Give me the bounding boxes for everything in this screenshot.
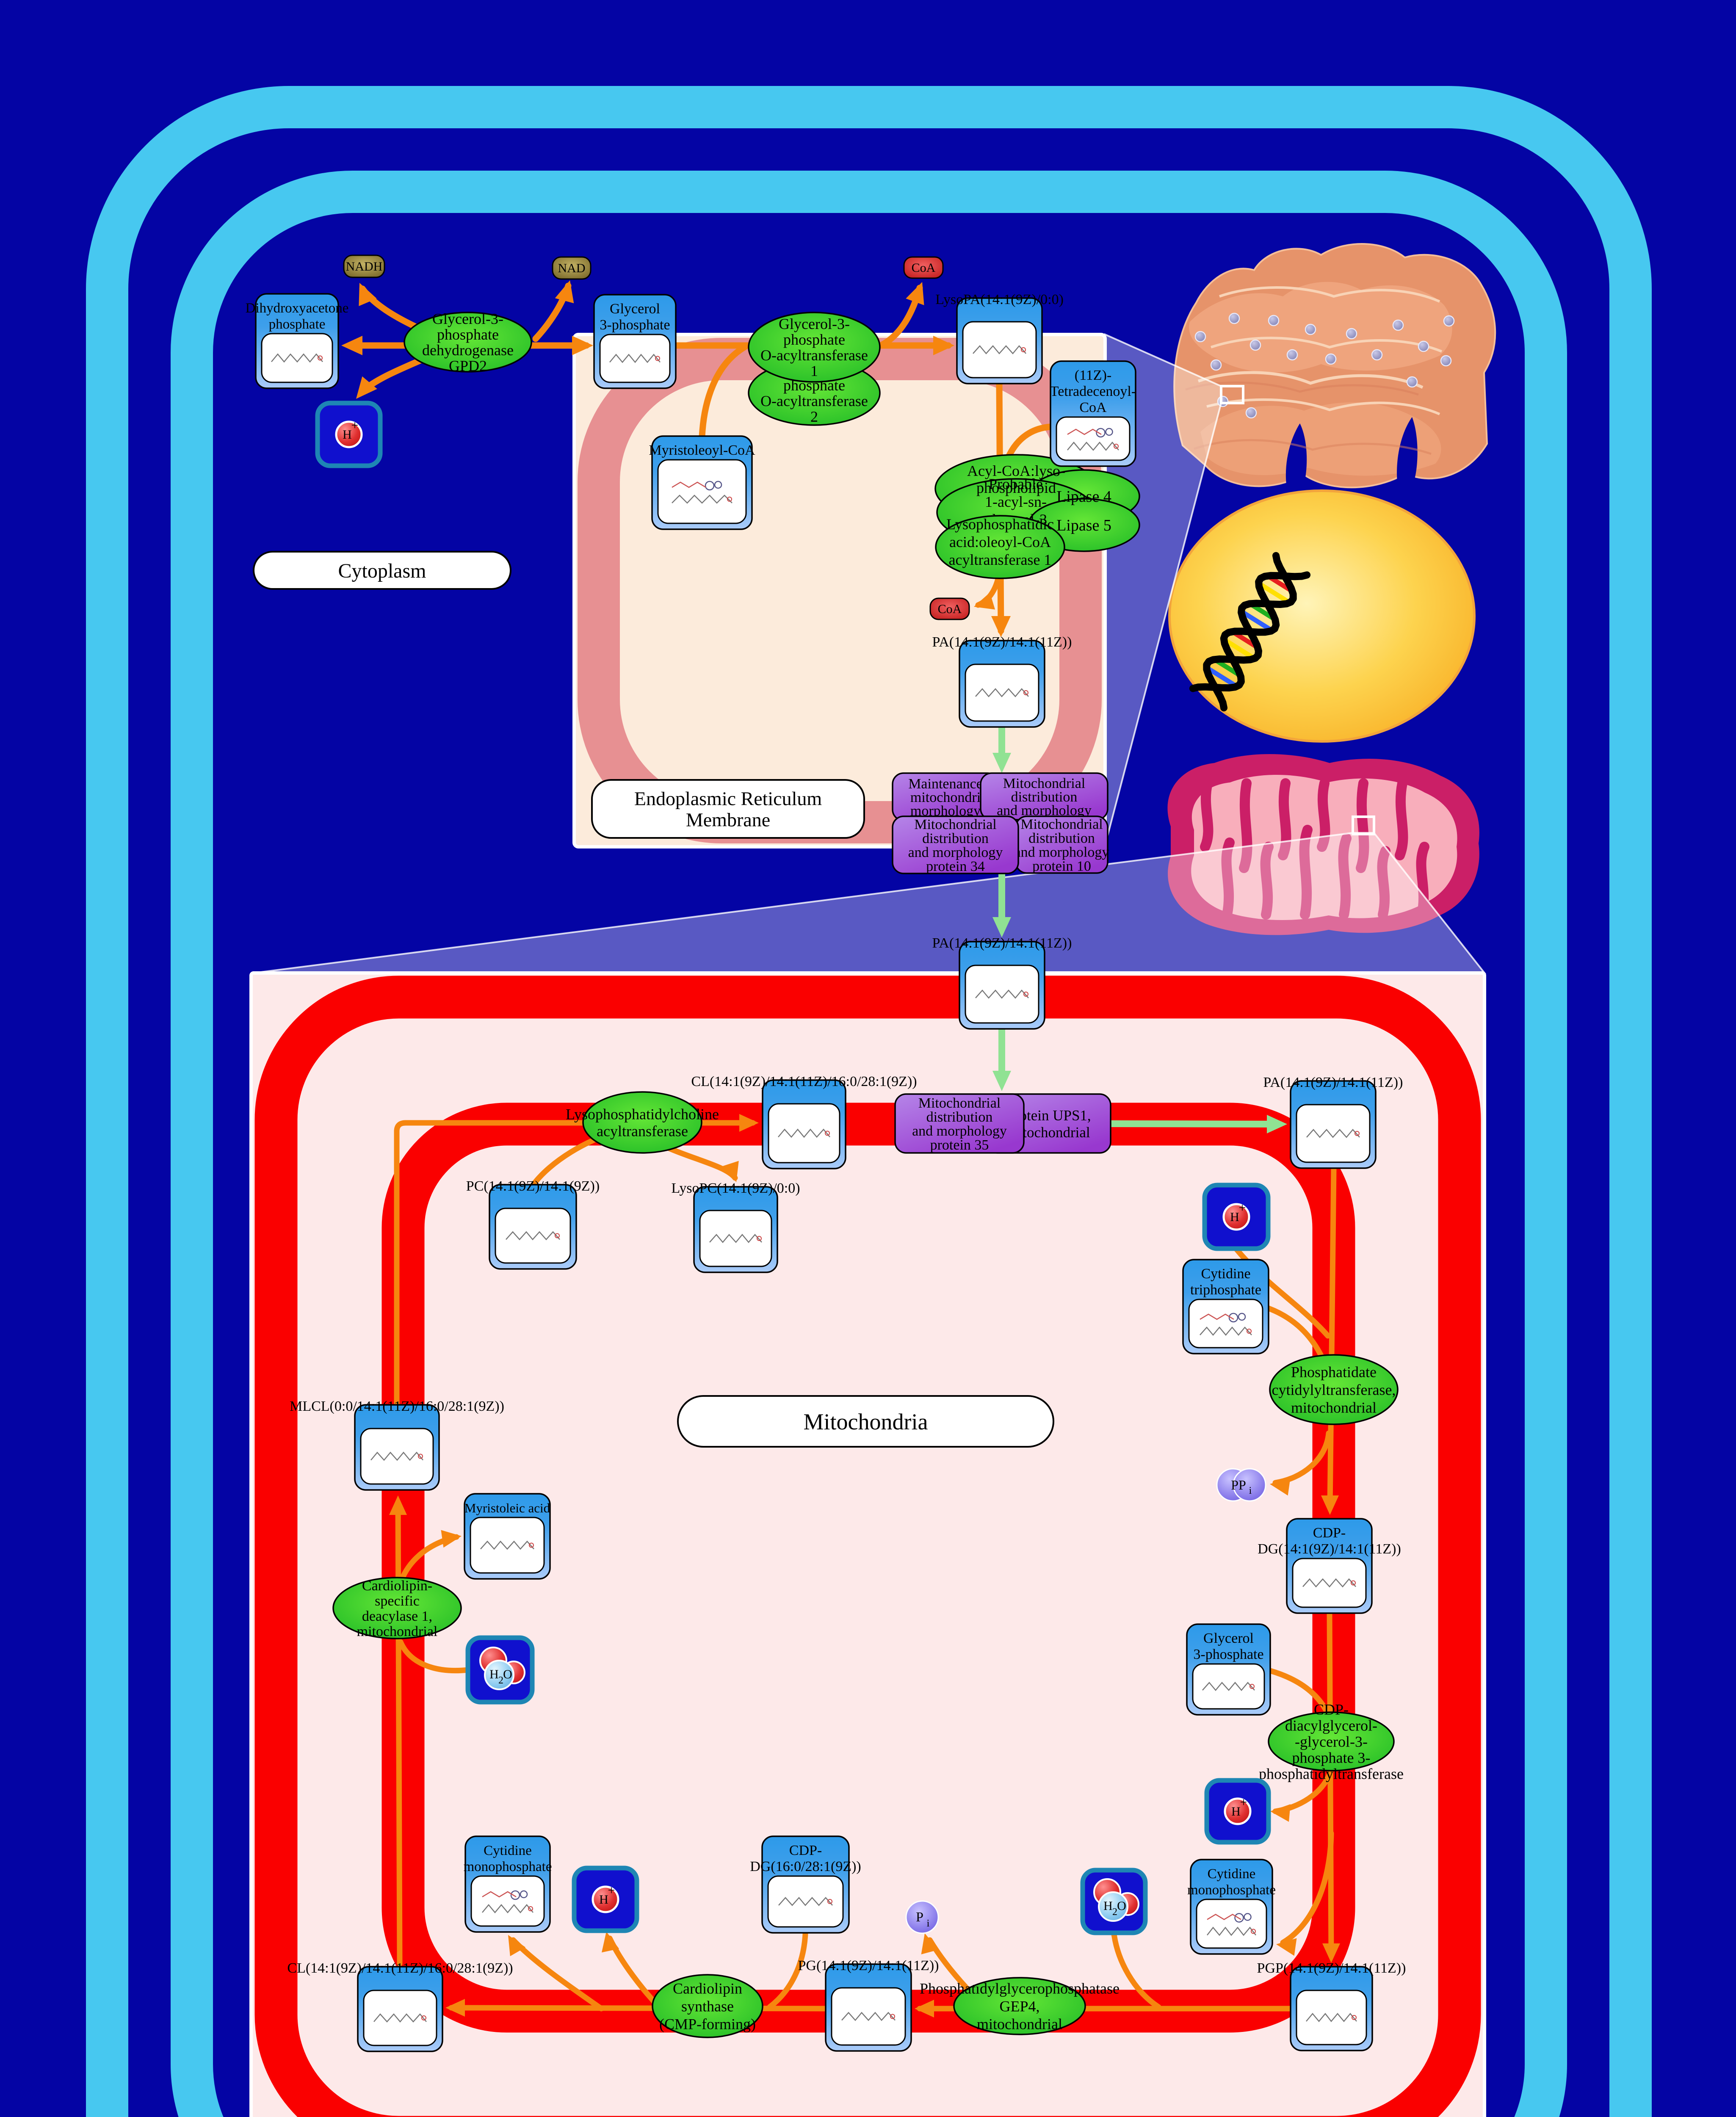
svg-text:Lysophosphatidylcholine: Lysophosphatidylcholine <box>566 1106 719 1123</box>
svg-text:Tetradecenoyl-: Tetradecenoyl- <box>1050 384 1136 399</box>
svg-text:GPD2: GPD2 <box>449 357 487 374</box>
svg-text:mitochondrial: mitochondrial <box>357 1624 438 1639</box>
svg-text:Glycerol-3-: Glycerol-3- <box>432 310 503 327</box>
svg-text:Probable: Probable <box>989 475 1043 492</box>
svg-text:3-phosphate: 3-phosphate <box>600 317 670 333</box>
svg-text:2: 2 <box>810 408 818 425</box>
svg-text:specific: specific <box>375 1593 420 1609</box>
svg-text:P: P <box>916 1909 923 1924</box>
svg-text:+: + <box>608 1883 615 1897</box>
svg-text:H: H <box>599 1893 608 1907</box>
svg-text:Membrane: Membrane <box>686 809 770 831</box>
svg-text:PA(14:1(9Z)/14:1(11Z)): PA(14:1(9Z)/14:1(11Z)) <box>932 634 1072 650</box>
svg-text:PG(14:1(9Z)/14:1(11Z)): PG(14:1(9Z)/14:1(11Z)) <box>798 1958 939 1973</box>
svg-text:NAD: NAD <box>558 261 586 275</box>
svg-text:Phosphatidylglycerophosphatase: Phosphatidylglycerophosphatase <box>920 1980 1120 1997</box>
svg-text:and morphology: and morphology <box>912 1123 1007 1139</box>
svg-text:Mitochondria: Mitochondria <box>804 1409 928 1434</box>
svg-text:LysoPA(14:1(9Z)/0:0): LysoPA(14:1(9Z)/0:0) <box>935 292 1064 307</box>
svg-text:phosphate: phosphate <box>437 326 499 343</box>
svg-text:Dihydroxyacetone: Dihydroxyacetone <box>246 301 349 316</box>
svg-text:Myristoleic acid: Myristoleic acid <box>464 1501 550 1515</box>
svg-text:Glycerol: Glycerol <box>1203 1631 1254 1646</box>
svg-text:GEP4,: GEP4, <box>999 1998 1039 2015</box>
svg-text:CoA: CoA <box>938 602 962 616</box>
svg-text:distribution: distribution <box>1028 830 1095 846</box>
svg-text:CL(14:1(9Z)/14:1(11Z)/16:0/28:: CL(14:1(9Z)/14:1(11Z)/16:0/28:1(9Z)) <box>287 1960 513 1976</box>
svg-text:phosphate: phosphate <box>269 317 326 332</box>
svg-text:Cytidine: Cytidine <box>484 1843 532 1858</box>
svg-text:PA(14:1(9Z)/14:1(11Z)): PA(14:1(9Z)/14:1(11Z)) <box>932 935 1072 951</box>
svg-text:O-acyltransferase: O-acyltransferase <box>760 392 868 409</box>
svg-text:H: H <box>343 428 352 442</box>
svg-text:diacylglycerol-: diacylglycerol- <box>1285 1717 1377 1734</box>
svg-text:CoA: CoA <box>1079 400 1107 415</box>
svg-text:PGP(14:1(9Z)/14:1(11Z)): PGP(14:1(9Z)/14:1(11Z)) <box>1257 1960 1406 1976</box>
svg-text:protein 34: protein 34 <box>926 859 985 874</box>
svg-text:Cardiolipin-: Cardiolipin- <box>362 1578 432 1594</box>
svg-text:Mitochondrial: Mitochondrial <box>918 1095 1001 1111</box>
svg-text:Phosphatidate: Phosphatidate <box>1291 1364 1377 1381</box>
svg-text:mitochondrial: mitochondrial <box>977 2016 1062 2033</box>
svg-text:protein 10: protein 10 <box>1032 858 1091 874</box>
svg-text:Glycerol-3-: Glycerol-3- <box>779 315 850 332</box>
svg-text:mitochondrial: mitochondrial <box>1291 1399 1377 1416</box>
svg-text:(CMP-forming): (CMP-forming) <box>659 2016 756 2033</box>
svg-text:acyltransferase 1: acyltransferase 1 <box>949 551 1052 568</box>
svg-text:triphosphate: triphosphate <box>1190 1282 1261 1298</box>
svg-text:Endoplasmic Reticulum: Endoplasmic Reticulum <box>634 788 822 810</box>
svg-text:Lipase 4: Lipase 4 <box>1056 488 1111 506</box>
svg-text:1: 1 <box>810 362 818 379</box>
svg-text:NADH: NADH <box>346 260 383 274</box>
svg-text:+: + <box>1239 1201 1246 1215</box>
svg-text:MLCL(0:0/14:1(11Z)/16:0/28:1(9: MLCL(0:0/14:1(11Z)/16:0/28:1(9Z)) <box>290 1398 504 1414</box>
svg-text:and morphology: and morphology <box>1015 844 1109 860</box>
svg-text:Mitochondrial: Mitochondrial <box>914 817 997 832</box>
svg-text:DG(16:0/28:1(9Z)): DG(16:0/28:1(9Z)) <box>750 1859 861 1874</box>
svg-text:CoA: CoA <box>912 261 936 275</box>
svg-text:Lipase 5: Lipase 5 <box>1056 517 1111 534</box>
svg-text:Cytoplasm: Cytoplasm <box>338 560 426 582</box>
svg-text:phosphate: phosphate <box>783 331 845 348</box>
svg-text:synthase: synthase <box>681 1998 734 2015</box>
svg-text:O-acyltransferase: O-acyltransferase <box>760 347 868 364</box>
svg-text:CDP-: CDP- <box>789 1843 822 1858</box>
svg-text:monophosphate: monophosphate <box>464 1859 552 1874</box>
svg-text:monophosphate: monophosphate <box>1187 1882 1276 1898</box>
svg-text:PA(14:1(9Z)/14:1(11Z)): PA(14:1(9Z)/14:1(11Z)) <box>1263 1075 1403 1090</box>
svg-text:CDP-: CDP- <box>1313 1525 1346 1541</box>
svg-text:Myristoleoyl-CoA: Myristoleoyl-CoA <box>649 442 755 458</box>
svg-text:distribution: distribution <box>926 1109 993 1125</box>
svg-text:PC(14:1(9Z)/14:1(9Z)): PC(14:1(9Z)/14:1(9Z)) <box>466 1178 600 1194</box>
svg-text:PP: PP <box>1231 1477 1246 1492</box>
svg-text:Cytidine: Cytidine <box>1201 1266 1250 1282</box>
svg-text:Lysophosphatidic: Lysophosphatidic <box>946 516 1054 533</box>
svg-text:and morphology: and morphology <box>908 845 1003 860</box>
svg-text:i: i <box>1249 1485 1252 1496</box>
svg-text:-glycerol-3-: -glycerol-3- <box>1295 1733 1368 1750</box>
svg-text:protein 35: protein 35 <box>930 1137 989 1153</box>
svg-text:Glycerol: Glycerol <box>610 301 660 317</box>
svg-text:+: + <box>1240 1795 1247 1809</box>
svg-text:acyltransferase: acyltransferase <box>597 1123 688 1140</box>
svg-text:CL(14:1(9Z)/14:1(11Z)/16:0/28:: CL(14:1(9Z)/14:1(11Z)/16:0/28:1(9Z)) <box>691 1074 917 1089</box>
svg-text:distribution: distribution <box>922 831 989 846</box>
svg-text:H: H <box>1103 1899 1113 1913</box>
svg-text:deacylase 1,: deacylase 1, <box>362 1608 432 1624</box>
svg-text:(11Z)-: (11Z)- <box>1075 368 1111 383</box>
svg-text:CDP-: CDP- <box>1314 1701 1349 1718</box>
svg-text:i: i <box>927 1918 930 1929</box>
svg-text:H: H <box>1230 1210 1239 1224</box>
svg-text:DG(14:1(9Z)/14:1(11Z)): DG(14:1(9Z)/14:1(11Z)) <box>1258 1541 1401 1557</box>
svg-text:phosphatidyltransferase: phosphatidyltransferase <box>1259 1766 1404 1783</box>
svg-text:cytidylyltransferase,: cytidylyltransferase, <box>1272 1382 1396 1398</box>
svg-text:1-acyl-sn-: 1-acyl-sn- <box>985 493 1047 510</box>
svg-text:dehydrogenase: dehydrogenase <box>422 342 514 359</box>
svg-text:Cytidine: Cytidine <box>1208 1866 1256 1882</box>
svg-text:Cardiolipin: Cardiolipin <box>673 1980 742 1997</box>
svg-text:H: H <box>1231 1805 1241 1819</box>
svg-text:acid:oleoyl-CoA: acid:oleoyl-CoA <box>949 533 1051 550</box>
svg-text:+: + <box>351 418 359 432</box>
svg-text:O: O <box>503 1667 512 1681</box>
svg-text:3-phosphate: 3-phosphate <box>1193 1647 1263 1662</box>
svg-text:LysoPC(14:1(9Z)/0:0): LysoPC(14:1(9Z)/0:0) <box>671 1180 800 1196</box>
svg-text:H: H <box>489 1667 499 1681</box>
svg-text:Mitochondrial: Mitochondrial <box>1020 816 1103 832</box>
svg-text:O: O <box>1117 1899 1126 1913</box>
svg-text:phosphate 3-: phosphate 3- <box>1292 1749 1371 1766</box>
